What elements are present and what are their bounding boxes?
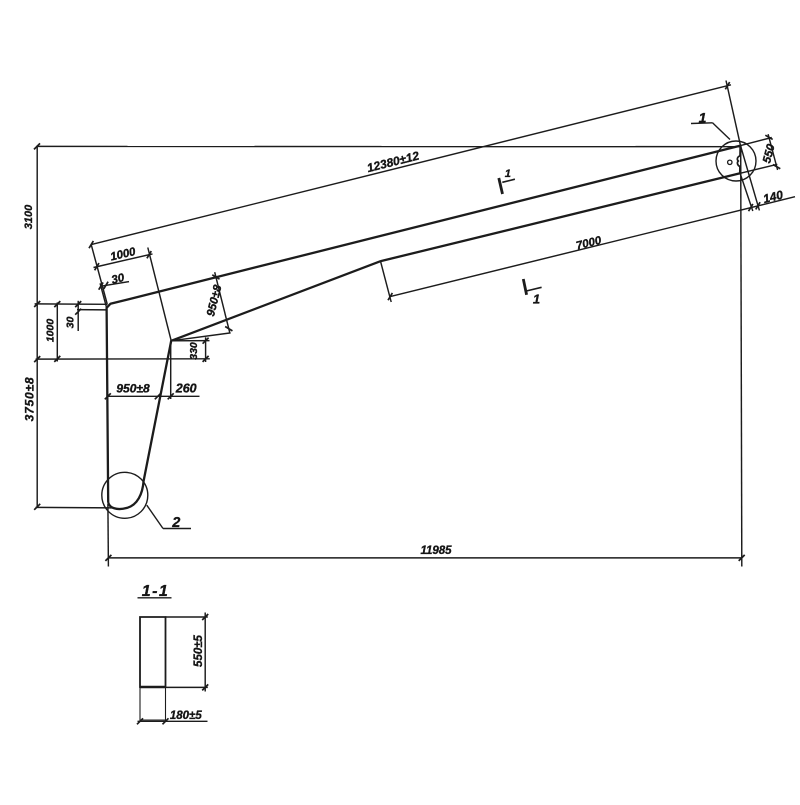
svg-text:260: 260	[175, 381, 197, 395]
svg-text:1: 1	[505, 168, 511, 180]
svg-text:330: 330	[188, 342, 200, 360]
svg-text:3750±8: 3750±8	[23, 377, 37, 422]
svg-text:950±8: 950±8	[116, 381, 150, 395]
svg-text:1000: 1000	[45, 319, 57, 343]
svg-text:1: 1	[699, 110, 707, 126]
svg-text:3100: 3100	[23, 204, 35, 229]
svg-text:11985: 11985	[420, 545, 452, 557]
svg-text:30: 30	[65, 317, 77, 329]
svg-text:180±5: 180±5	[170, 710, 202, 722]
svg-text:550±5: 550±5	[193, 634, 205, 666]
svg-text:2: 2	[171, 515, 180, 531]
svg-text:1: 1	[533, 292, 540, 307]
